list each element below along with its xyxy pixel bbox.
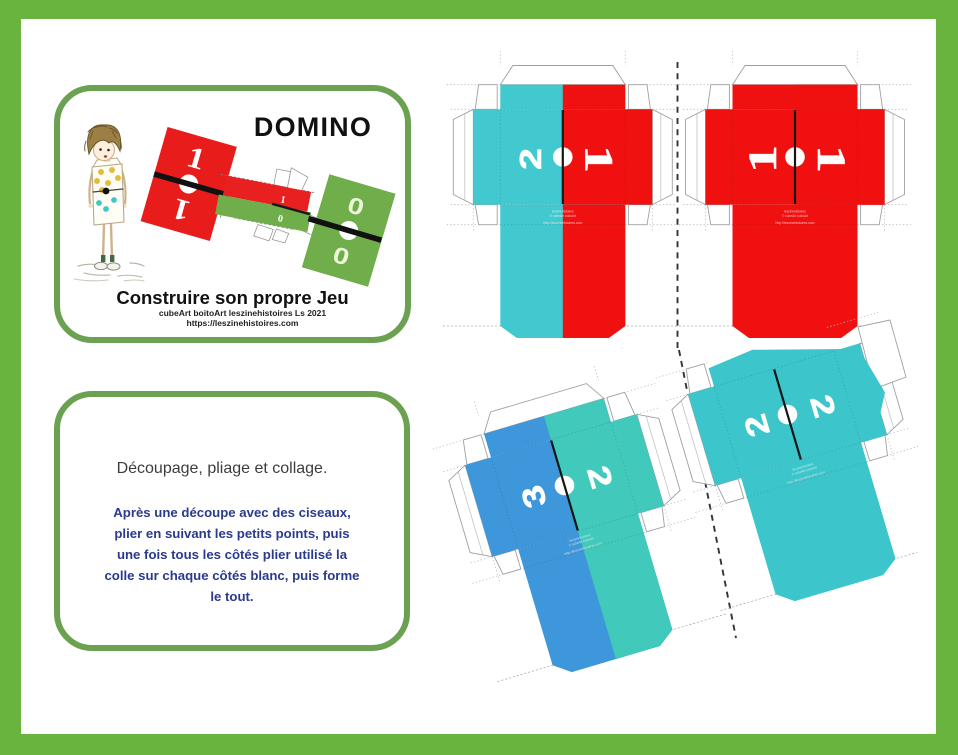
svg-text:http://leszinehistoires.com: http://leszinehistoires.com xyxy=(543,221,582,225)
svg-text:© cubeArt boitoArt: © cubeArt boitoArt xyxy=(550,214,576,218)
svg-text:1: 1 xyxy=(741,145,785,173)
svg-text:http://leszinehistoires.com: http://leszinehistoires.com xyxy=(775,221,814,225)
svg-text:1: 1 xyxy=(577,145,621,173)
svg-text:2: 2 xyxy=(514,148,548,170)
svg-text:1: 1 xyxy=(809,145,853,173)
svg-text:DOMINO: DOMINO xyxy=(254,112,372,142)
svg-text:© cubeArt boitoArt: © cubeArt boitoArt xyxy=(782,214,808,218)
